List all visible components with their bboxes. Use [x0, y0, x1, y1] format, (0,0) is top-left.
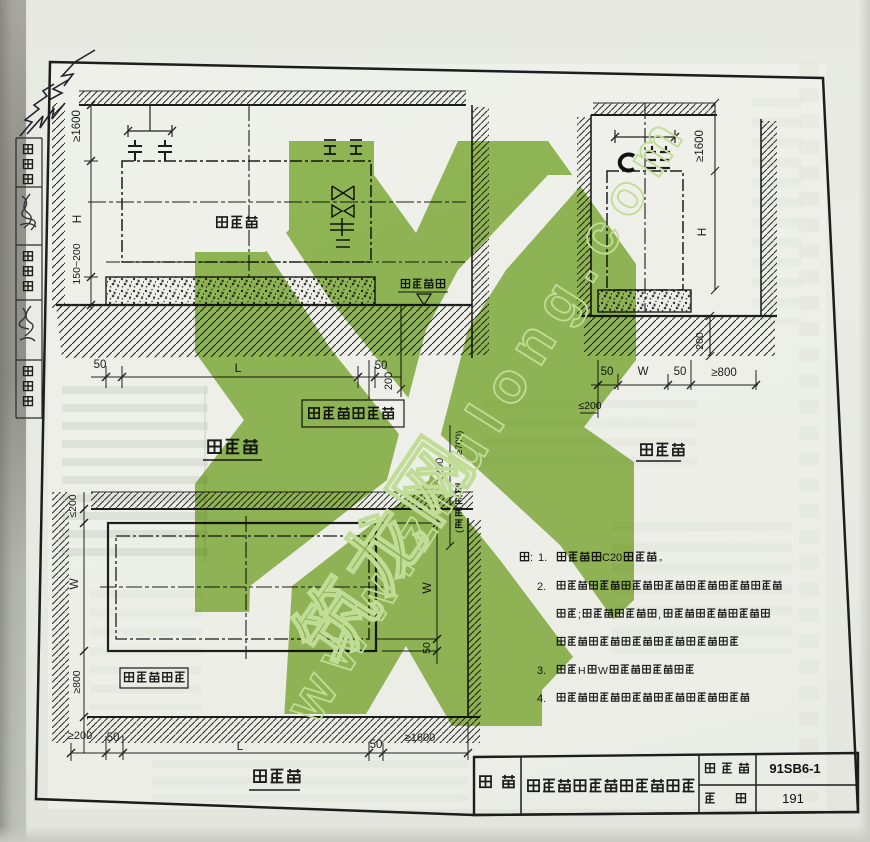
svg-text:150~200: 150~200	[71, 243, 83, 284]
svg-text:≥800: ≥800	[71, 670, 83, 693]
svg-text:≥200: ≥200	[68, 730, 92, 742]
svg-text:91SB6-1: 91SB6-1	[769, 761, 820, 776]
svg-text:≤200: ≤200	[67, 494, 79, 517]
svg-text:W: W	[67, 578, 81, 590]
svg-text:191: 191	[782, 791, 804, 806]
svg-text:200: 200	[694, 332, 706, 350]
svg-text:H: H	[695, 228, 709, 237]
svg-text:50: 50	[107, 732, 120, 744]
svg-text:H: H	[70, 215, 84, 224]
svg-text:50: 50	[94, 359, 107, 371]
svg-text:≥1600: ≥1600	[71, 110, 83, 142]
svg-text:≥800: ≥800	[711, 367, 737, 379]
